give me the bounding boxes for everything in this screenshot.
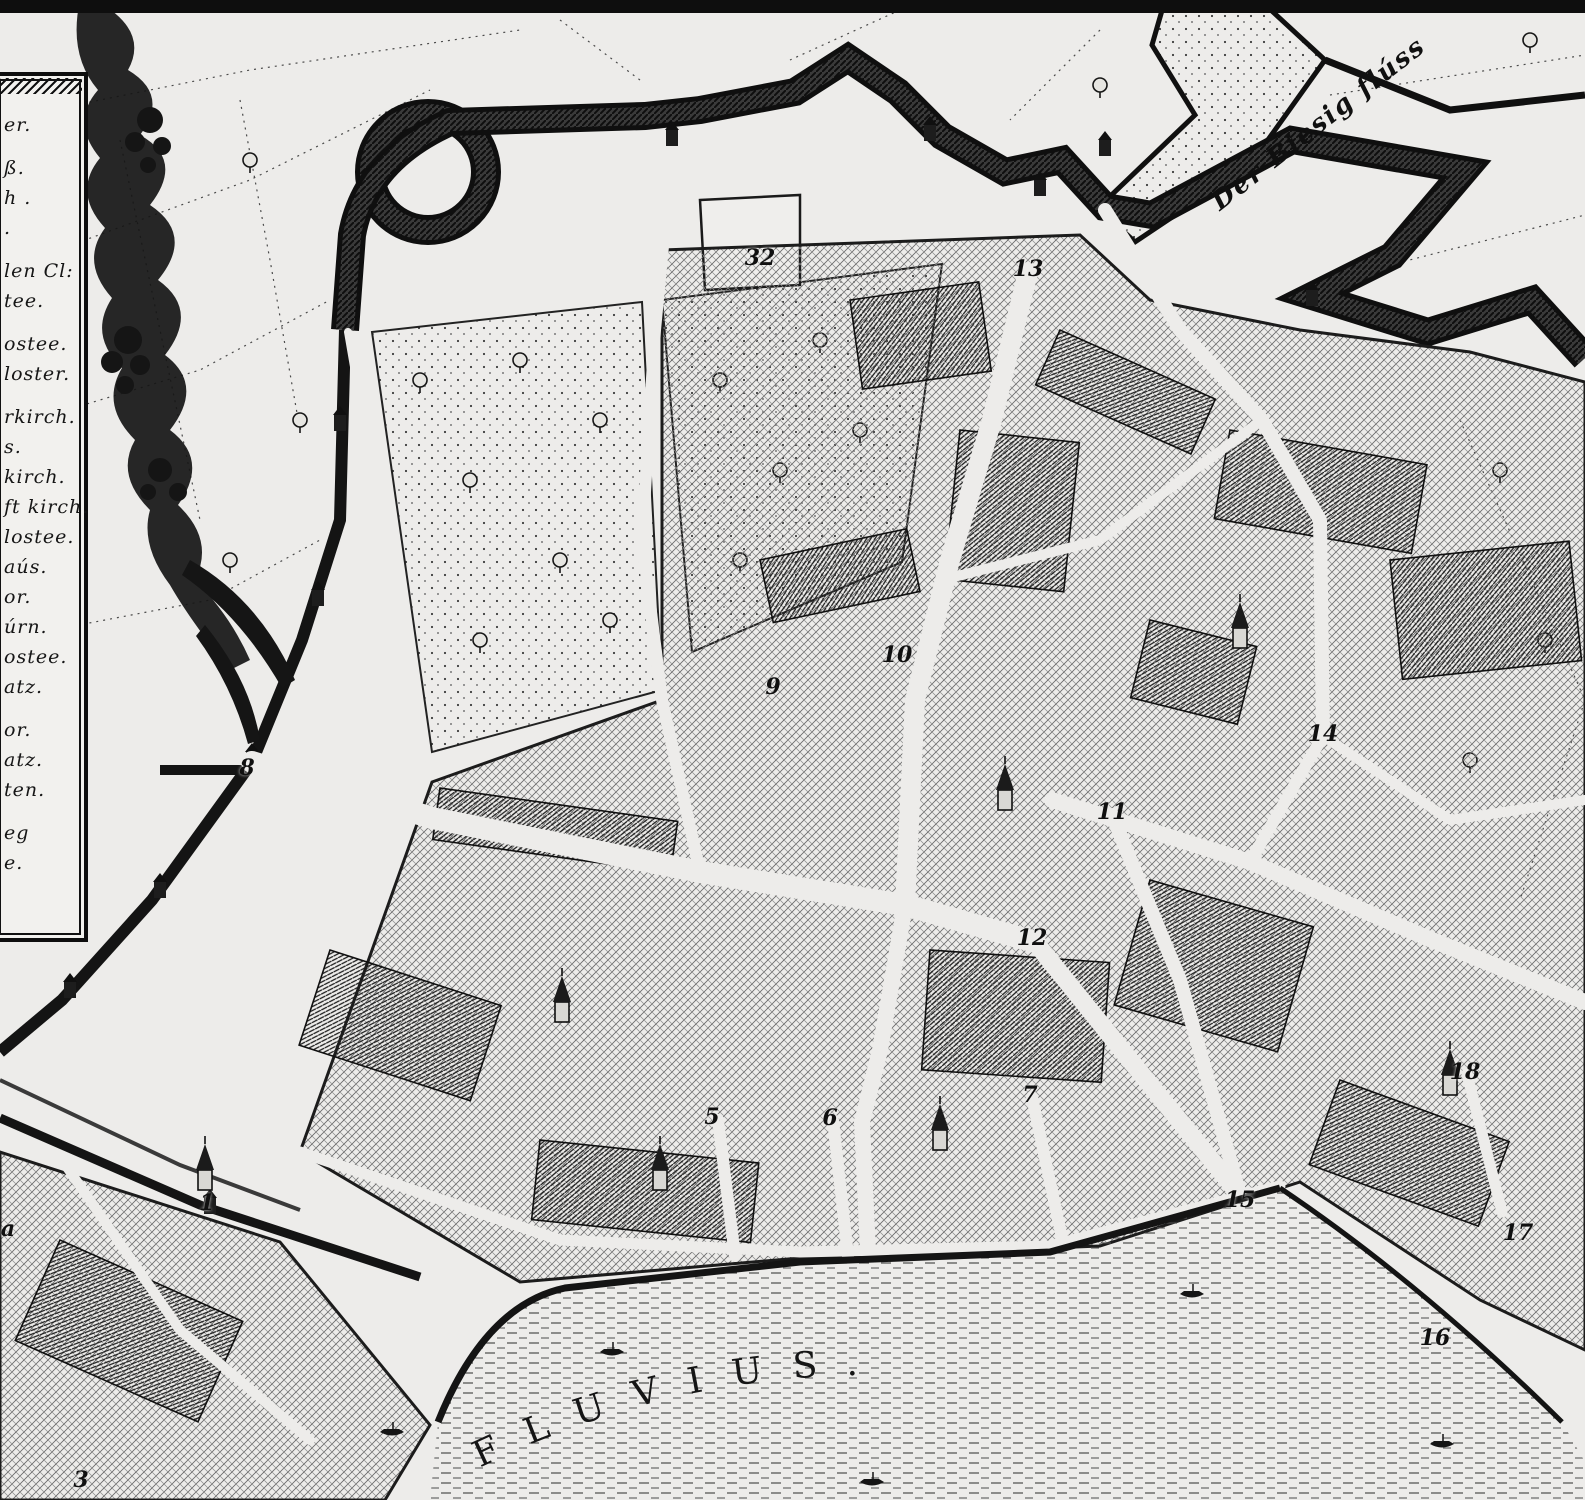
legend-line: lostee. (4, 522, 80, 552)
map-number-marker: 18 (1450, 1059, 1481, 1085)
legend-line: ten. (4, 775, 80, 805)
legend-line: úrn. (4, 612, 80, 642)
map-number-marker: 14 (1308, 721, 1339, 747)
map-number-marker: 17 (1503, 1220, 1534, 1246)
legend-line: er. (4, 110, 80, 140)
legend-line: atz. (4, 745, 80, 775)
map-number-marker: 12 (1017, 925, 1048, 951)
map-number-marker: 3 (73, 1467, 88, 1493)
map-number-marker: 6 (822, 1105, 837, 1131)
map-number-marker: 5 (704, 1104, 719, 1130)
legend-line: . (4, 213, 80, 243)
map-number-marker: 10 (882, 642, 913, 668)
legend-line: kirch. (4, 462, 80, 492)
engraved-city-map: FLUVIUS. er.ß.h ..len Cl:tee.ostee.loste… (0, 0, 1585, 1500)
map-number-marker: a (1, 1216, 15, 1242)
legend-line: aús. (4, 552, 80, 582)
legend-line: len Cl: (4, 256, 80, 286)
legend-line: ostee. (4, 642, 80, 672)
map-number-marker: 7 (1022, 1082, 1037, 1108)
map-number-marker: 32 (745, 245, 776, 271)
legend-box: er.ß.h ..len Cl:tee.ostee.loster.rkirch.… (0, 72, 88, 942)
legend-line: or. (4, 582, 80, 612)
map-number-marker: 1 (199, 1190, 214, 1216)
map-number-marker: 9 (765, 674, 780, 700)
legend-line: ß. (4, 153, 80, 183)
map-top-frame (0, 0, 1585, 13)
legend-line: s. (4, 432, 80, 462)
legend-line: or. (4, 715, 80, 745)
legend-hatch-border (0, 78, 82, 94)
legend-line: h . (4, 183, 80, 213)
legend-line: atz. (4, 672, 80, 702)
legend-line: eg (4, 818, 80, 848)
map-number-marker: 15 (1225, 1187, 1256, 1213)
legend-line: ft kirch. (4, 492, 80, 522)
map-engraving-svg: FLUVIUS. (0, 0, 1585, 1500)
legend-line: loster. (4, 359, 80, 389)
map-number-marker: 16 (1420, 1325, 1451, 1351)
legend-line: tee. (4, 286, 80, 316)
map-number-marker: 13 (1013, 256, 1044, 282)
legend-line: rkirch. (4, 402, 80, 432)
legend-line: ostee. (4, 329, 80, 359)
map-number-marker: 11 (1097, 799, 1128, 825)
map-number-marker: 8 (239, 755, 254, 781)
legend-lines: er.ß.h ..len Cl:tee.ostee.loster.rkirch.… (4, 110, 80, 878)
legend-line: e. (4, 848, 80, 878)
